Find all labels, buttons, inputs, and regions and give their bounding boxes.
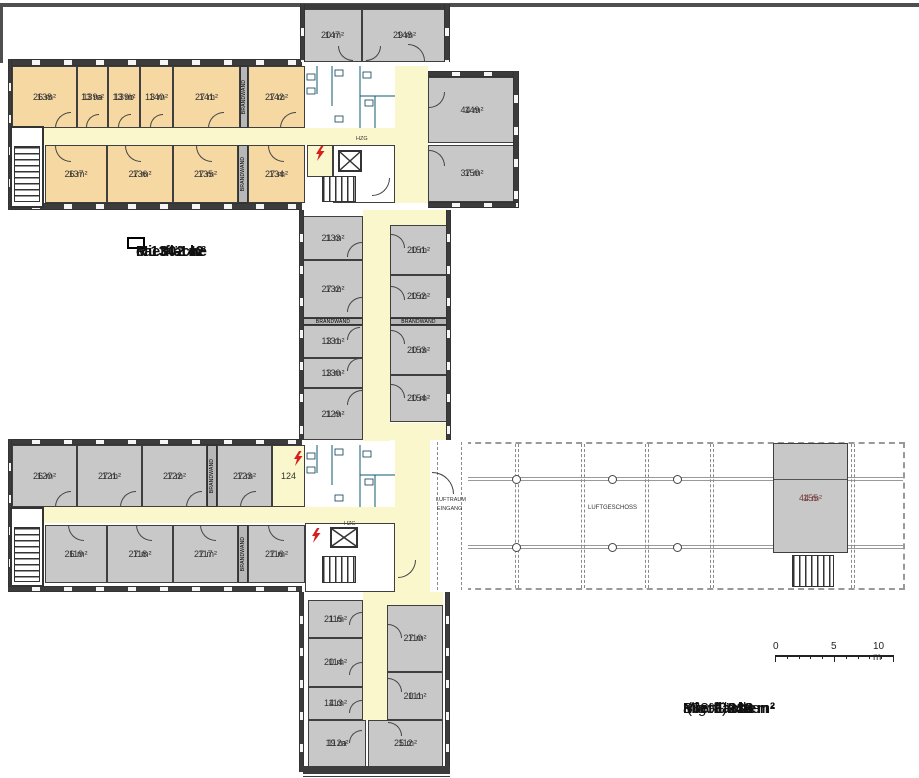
wall-top-wing-south <box>8 203 302 210</box>
column-circle <box>512 543 521 552</box>
entrance-zone <box>430 440 468 592</box>
luftgeschoss-column-line <box>515 444 519 588</box>
room-area: 20 m² <box>407 393 430 403</box>
room-137: 13726 m² <box>45 145 107 203</box>
room-area: 21 m² <box>324 614 347 624</box>
scale-tick <box>846 655 847 659</box>
wall-top-wing-north <box>8 59 302 66</box>
room-area: 44 m² <box>460 105 483 115</box>
scale-tick <box>810 655 811 659</box>
stairs-155 <box>792 555 834 587</box>
wall-bottom-wing-south <box>303 766 450 774</box>
scale-tick <box>787 655 788 659</box>
room-area: 27 m² <box>194 169 217 179</box>
corridor-top-wing <box>40 128 428 145</box>
room-area: 21 m² <box>321 409 344 419</box>
label-luftgeschoss: LUFTGESCHOSS <box>588 505 637 512</box>
firewall-text: BRANDWAND <box>401 319 435 325</box>
column-circle <box>673 543 682 552</box>
firewall-label: BRANDWAND <box>303 318 363 325</box>
firewall-label: BRANDWAND <box>390 318 447 325</box>
scale-label-0: 0 <box>773 641 779 652</box>
wall-150-south <box>428 202 518 208</box>
room-112: 11225 m² <box>368 720 443 767</box>
room-area: 27 m² <box>265 169 288 179</box>
room-area: 13 m² <box>321 336 344 346</box>
wall-stub-west <box>300 4 305 62</box>
scale-tick <box>834 655 835 662</box>
corridor-mid-elbow-top <box>390 210 447 225</box>
room-150: 15037 m² <box>428 145 516 202</box>
corridor-mid <box>363 210 390 441</box>
corridor-bottom-elbow <box>387 592 443 605</box>
room-151: 15120 m² <box>390 225 447 275</box>
stairs-west-bottom <box>14 527 40 582</box>
room-area: 26 m² <box>64 169 87 179</box>
scale-tick <box>822 655 823 659</box>
room-area: 13 m² <box>145 92 168 102</box>
firewall-text: BRANDWAND <box>241 80 247 114</box>
elevator-x-top <box>338 150 362 172</box>
column-circle <box>608 543 617 552</box>
wall-mid-east <box>446 210 451 440</box>
stairs-core-top <box>322 176 356 202</box>
room-155: 15544 m² <box>773 443 848 553</box>
room-area: 27 m² <box>195 92 218 102</box>
room-141: 14127 m² <box>173 66 240 128</box>
flash-icon <box>316 146 325 161</box>
corridor-lower-wing <box>40 507 430 523</box>
room-110: 11027 m² <box>387 605 443 672</box>
room-112a: 112a19 m² <box>308 720 366 767</box>
room-area: 27 m² <box>163 471 186 481</box>
scale-tick <box>881 655 882 659</box>
firewall-text: BRANDWAND <box>240 157 246 191</box>
wall-lower-wing-south <box>8 586 302 592</box>
flash-icon <box>294 451 303 466</box>
room-area: 14 m² <box>324 698 347 708</box>
room-number: 124 <box>281 471 296 481</box>
label-hzg-top: HZG <box>356 136 368 143</box>
room-area: 27 m² <box>321 284 344 294</box>
wall-mid-west <box>299 210 304 440</box>
room-area: 27 m² <box>128 169 151 179</box>
room-area: 27 m² <box>233 471 256 481</box>
elevator-x-bottom <box>330 527 358 548</box>
room-area: 20 m² <box>407 245 430 255</box>
scale-tick <box>858 655 859 659</box>
label-hzg-bottom: HZG <box>344 521 356 528</box>
room-area: 20 m² <box>407 345 430 355</box>
wall-bottom-sill <box>303 776 450 777</box>
room-area: 13 m² <box>112 92 135 102</box>
entrance-dashed-line <box>461 442 462 590</box>
room-142: 14227 m² <box>248 66 305 128</box>
scale-tick <box>893 655 894 662</box>
wall-stub-north <box>300 4 450 9</box>
firewall-text: BRANDWAND <box>240 537 246 571</box>
room-area: 27 m² <box>98 471 121 481</box>
scale-label-10: 10 m <box>873 641 895 663</box>
room-area: 26 m² <box>64 549 87 559</box>
callout-line-3: ca. 302 m² <box>136 243 206 262</box>
room-area: 19 m² <box>325 738 348 748</box>
firewall-label: BRANDWAND <box>240 66 248 128</box>
corridor-bottom-wing <box>363 592 387 720</box>
room-area: 26 m² <box>33 471 56 481</box>
corridor-top-right <box>395 66 428 203</box>
room-area: 29 m² <box>393 30 416 40</box>
room-area: 27 m² <box>128 549 151 559</box>
room-149: 14944 m² <box>428 77 516 143</box>
firewall-label: BRANDWAND <box>238 145 248 203</box>
luftgeschoss-column-line <box>581 444 585 588</box>
floor-plan: 14720 m²14829 m²13826 m²139a13 m²139b13 … <box>0 0 919 778</box>
luftgeschoss-column-line <box>710 444 714 588</box>
room-area: 26 m² <box>33 92 56 102</box>
room-area: 21 m² <box>321 233 344 243</box>
scale-tick <box>799 655 800 659</box>
wall-bottom-wing-west <box>299 592 304 772</box>
room-area: 20 m² <box>407 291 430 301</box>
wall-stub-east <box>444 4 450 62</box>
room-area: 20 m² <box>321 30 344 40</box>
firewall-text: BRANDWAND <box>316 319 350 325</box>
room-area: 27 m² <box>265 549 288 559</box>
totals-value: 1.248 m² <box>683 700 775 717</box>
wall-149-north <box>428 71 518 77</box>
room-area: 20 m² <box>403 691 426 701</box>
room-area: 13 m² <box>81 92 104 102</box>
scale-tick <box>775 655 776 662</box>
entrance-dashed-line <box>437 442 438 590</box>
rental-callout: R 134-142 Mietfläche ca. 302 m² <box>127 237 145 249</box>
room-area: 27 m² <box>265 92 288 102</box>
luftgeschoss-column-line <box>645 444 649 588</box>
room-area: 20 m² <box>324 657 347 667</box>
room-area: 37 m² <box>460 168 483 178</box>
wall-lower-wing-north <box>8 439 302 445</box>
room-area: 13 m² <box>321 368 344 378</box>
firewall-label: BRANDWAND <box>207 445 217 507</box>
scale-tick <box>869 655 870 659</box>
sheet-top-border <box>0 3 919 7</box>
room-147: 14720 m² <box>303 9 362 62</box>
room-area: 27 m² <box>194 549 217 559</box>
scale-label-5: 5 <box>831 641 837 652</box>
room-area: 44 m² <box>799 493 822 503</box>
column-circle <box>673 475 682 484</box>
sanitary-partitions-bottom <box>305 445 395 507</box>
stairs-west-top <box>14 146 40 202</box>
label-eingang: EINGANG <box>437 506 462 513</box>
column-circle <box>608 475 617 484</box>
luftgeschoss-column-line <box>851 444 855 588</box>
sanitary-partitions-top <box>305 66 395 128</box>
corridor-mid-elbow-bottom <box>363 423 447 440</box>
scale-bar: 0 5 10 m <box>775 641 895 665</box>
sheet-left-border <box>0 3 3 63</box>
firewall-label: BRANDWAND <box>238 525 248 583</box>
room-area: 27 m² <box>403 633 426 643</box>
column-circle <box>512 475 521 484</box>
stairs-core-bottom <box>322 556 356 583</box>
room-154: 15420 m² <box>390 375 447 422</box>
label-luftraum: LUFTRAUM <box>436 497 466 504</box>
room-114: 11420 m² <box>308 638 363 687</box>
flash-icon <box>312 528 321 543</box>
wall-bottom-wing-east <box>445 592 450 772</box>
wall-149-east <box>513 71 519 208</box>
firewall-text: BRANDWAND <box>209 459 215 493</box>
room-area: 25 m² <box>394 738 417 748</box>
